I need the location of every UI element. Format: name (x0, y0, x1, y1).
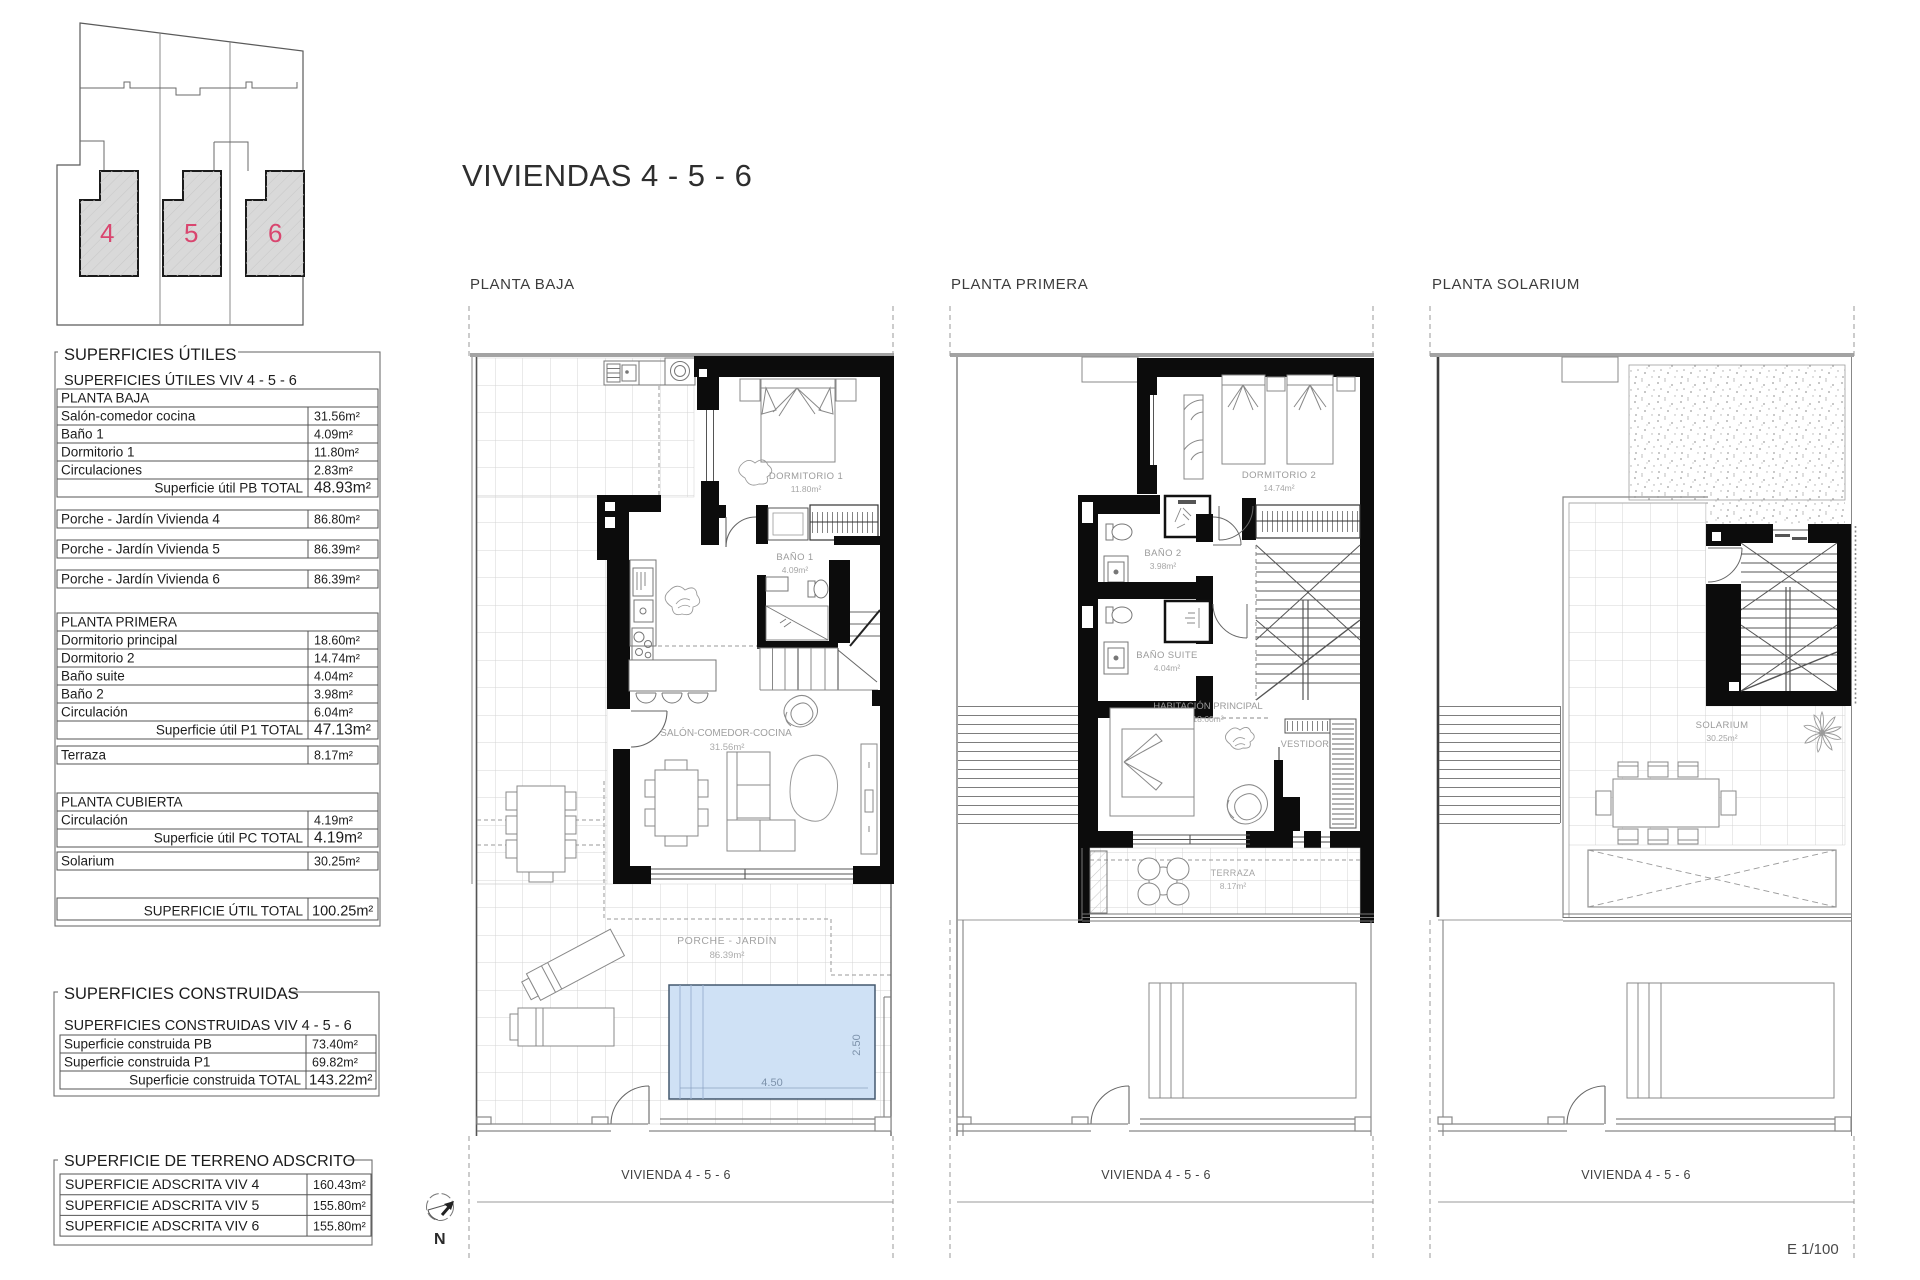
svg-text:18.60m²: 18.60m² (1192, 714, 1223, 724)
svg-text:Dormitorio 1: Dormitorio 1 (61, 445, 135, 460)
svg-text:SUPERFICIE ADSCRITA VIV 4: SUPERFICIE ADSCRITA VIV 4 (65, 1176, 259, 1192)
svg-text:143.22m²: 143.22m² (309, 1072, 372, 1089)
svg-text:4: 4 (100, 218, 114, 248)
svg-text:VESTIDOR: VESTIDOR (1281, 739, 1330, 749)
svg-text:4.09m²: 4.09m² (314, 428, 353, 442)
svg-text:31.56m²: 31.56m² (710, 742, 745, 753)
svg-text:BAÑO 1: BAÑO 1 (776, 552, 813, 563)
svg-text:4.04m²: 4.04m² (314, 670, 353, 684)
svg-text:4.19m²: 4.19m² (314, 830, 362, 847)
svg-text:SUPERFICIES CONSTRUIDAS VIV 4: SUPERFICIES CONSTRUIDAS VIV 4 - 5 - 6 (64, 1018, 352, 1034)
svg-text:E 1/100: E 1/100 (1787, 1241, 1839, 1258)
svg-text:3.98m²: 3.98m² (314, 688, 353, 702)
svg-text:PLANTA PRIMERA: PLANTA PRIMERA (61, 615, 177, 630)
svg-text:N: N (434, 1231, 446, 1248)
svg-text:SUPERFICIES CONSTRUIDAS: SUPERFICIES CONSTRUIDAS (64, 985, 299, 1003)
svg-text:Circulación: Circulación (61, 705, 128, 720)
svg-text:5: 5 (184, 218, 198, 248)
svg-text:SUPERFICIES ÚTILES VIV 4 - 5 -: SUPERFICIES ÚTILES VIV 4 - 5 - 6 (64, 372, 297, 389)
svg-text:Superficie útil P1 TOTAL: Superficie útil P1 TOTAL (156, 723, 304, 738)
svg-text:86.80m²: 86.80m² (314, 513, 360, 527)
svg-text:8.17m²: 8.17m² (314, 749, 353, 763)
svg-text:Porche - Jardín Vivienda 5: Porche - Jardín Vivienda 5 (61, 542, 220, 557)
svg-text:160.43m²: 160.43m² (313, 1178, 366, 1192)
svg-text:SALÓN-COMEDOR-COCINA: SALÓN-COMEDOR-COCINA (660, 726, 792, 739)
svg-text:Porche - Jardín Vivienda 6: Porche - Jardín Vivienda 6 (61, 572, 220, 587)
svg-text:8.17m²: 8.17m² (1220, 881, 1247, 891)
svg-text:Dormitorio principal: Dormitorio principal (61, 633, 177, 648)
svg-text:155.80m²: 155.80m² (313, 1199, 366, 1213)
svg-text:18.60m²: 18.60m² (314, 634, 360, 648)
svg-text:69.82m²: 69.82m² (312, 1056, 358, 1070)
svg-text:11.80m²: 11.80m² (791, 484, 822, 494)
svg-text:155.80m²: 155.80m² (313, 1220, 366, 1234)
svg-text:SOLARIUM: SOLARIUM (1696, 720, 1749, 731)
svg-text:Solarium: Solarium (61, 854, 114, 869)
svg-text:Terraza: Terraza (61, 748, 107, 763)
svg-text:11.80m²: 11.80m² (314, 446, 359, 460)
svg-text:2.83m²: 2.83m² (314, 464, 353, 478)
svg-text:PLANTA PRIMERA: PLANTA PRIMERA (951, 276, 1088, 293)
svg-text:VIVIENDA 4 - 5 - 6: VIVIENDA 4 - 5 - 6 (1581, 1168, 1691, 1182)
svg-text:TERRAZA: TERRAZA (1211, 868, 1256, 878)
svg-text:SUPERFICIE ÚTIL TOTAL: SUPERFICIE ÚTIL TOTAL (144, 904, 304, 919)
svg-text:Circulaciones: Circulaciones (61, 463, 142, 478)
svg-text:30.25m²: 30.25m² (314, 855, 360, 869)
svg-text:VIVIENDA 4 - 5 - 6: VIVIENDA 4 - 5 - 6 (1101, 1168, 1211, 1182)
svg-text:86.39m²: 86.39m² (710, 950, 745, 961)
svg-text:PLANTA BAJA: PLANTA BAJA (470, 276, 575, 293)
svg-text:Superficie construida TOTAL: Superficie construida TOTAL (129, 1073, 301, 1088)
svg-text:4.19m²: 4.19m² (314, 814, 353, 828)
svg-text:86.39m²: 86.39m² (314, 573, 360, 587)
svg-text:SUPERFICIE ADSCRITA VIV 5: SUPERFICIE ADSCRITA VIV 5 (65, 1197, 259, 1213)
svg-text:Superficie útil PB TOTAL: Superficie útil PB TOTAL (154, 481, 303, 496)
svg-text:VIVIENDA 4 - 5 - 6: VIVIENDA 4 - 5 - 6 (621, 1168, 731, 1182)
svg-text:3.98m²: 3.98m² (1150, 561, 1177, 571)
svg-text:4.50: 4.50 (761, 1077, 782, 1089)
svg-text:Porche - Jardín Vivienda 4: Porche - Jardín Vivienda 4 (61, 512, 220, 527)
svg-text:PLANTA CUBIERTA: PLANTA CUBIERTA (61, 795, 183, 810)
svg-text:PLANTA SOLARIUM: PLANTA SOLARIUM (1432, 276, 1580, 293)
svg-text:SUPERFICIE DE TERRENO ADSCRITO: SUPERFICIE DE TERRENO ADSCRITO (64, 1153, 355, 1170)
svg-text:2.50: 2.50 (851, 1034, 863, 1055)
svg-text:14.74m²: 14.74m² (314, 652, 360, 666)
svg-text:Salón-comedor cocina: Salón-comedor cocina (61, 409, 196, 424)
svg-text:4.09m²: 4.09m² (782, 565, 809, 575)
svg-text:DORMITORIO 2: DORMITORIO 2 (1242, 470, 1316, 481)
svg-text:BAÑO 2: BAÑO 2 (1144, 548, 1181, 559)
svg-text:14.74m²: 14.74m² (1263, 483, 1294, 493)
svg-text:Baño 2: Baño 2 (61, 687, 104, 702)
svg-text:DORMITORIO 1: DORMITORIO 1 (769, 471, 843, 482)
svg-text:Circulación: Circulación (61, 813, 128, 828)
svg-text:6.04m²: 6.04m² (314, 706, 353, 720)
svg-text:4.04m²: 4.04m² (1154, 663, 1181, 673)
svg-text:PLANTA BAJA: PLANTA BAJA (61, 391, 149, 406)
svg-text:BAÑO SUITE: BAÑO SUITE (1136, 650, 1198, 661)
svg-text:SUPERFICIES ÚTILES: SUPERFICIES ÚTILES (64, 345, 236, 364)
svg-text:Superficie construida P1: Superficie construida P1 (64, 1055, 210, 1070)
svg-text:47.13m²: 47.13m² (314, 722, 371, 739)
svg-text:Superficie útil PC TOTAL: Superficie útil PC TOTAL (154, 831, 304, 846)
svg-text:VIVIENDAS 4 - 5 - 6: VIVIENDAS 4 - 5 - 6 (462, 158, 752, 193)
svg-text:31.56m²: 31.56m² (314, 410, 360, 424)
svg-text:PORCHE - JARDÍN: PORCHE - JARDÍN (677, 934, 777, 947)
svg-text:73.40m²: 73.40m² (312, 1038, 358, 1052)
svg-text:6: 6 (268, 218, 282, 248)
svg-text:Dormitorio 2: Dormitorio 2 (61, 651, 135, 666)
svg-text:48.93m²: 48.93m² (314, 480, 371, 497)
svg-text:30.25m²: 30.25m² (1706, 733, 1737, 743)
svg-text:Baño 1: Baño 1 (61, 427, 104, 442)
svg-text:100.25m²: 100.25m² (312, 904, 373, 920)
svg-text:Baño suite: Baño suite (61, 669, 125, 684)
svg-text:SUPERFICIE ADSCRITA VIV 6: SUPERFICIE ADSCRITA VIV 6 (65, 1218, 259, 1234)
svg-text:86.39m²: 86.39m² (314, 543, 360, 557)
svg-text:Superficie construida PB: Superficie construida PB (64, 1037, 212, 1052)
